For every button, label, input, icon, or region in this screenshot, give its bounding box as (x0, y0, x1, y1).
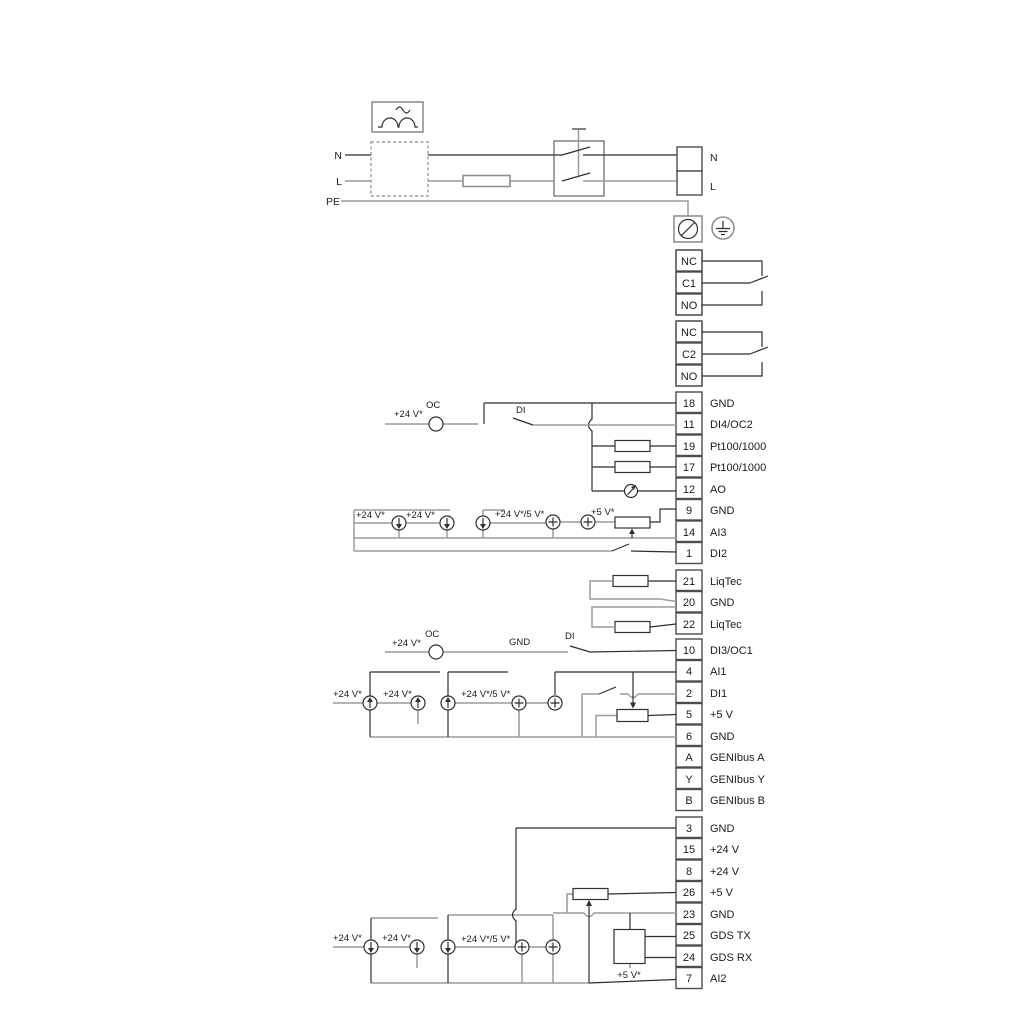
potentiometer-icon (615, 517, 650, 528)
rectified-wave-icon (378, 118, 418, 127)
open-collector-icon (429, 645, 443, 659)
terminal-number: 8 (686, 866, 692, 878)
di-switch-icon (570, 646, 676, 652)
terminal-number: 3 (686, 823, 692, 835)
terminal-number: 17 (683, 462, 695, 474)
filter-box (371, 142, 428, 196)
terminal-label: AI3 (710, 527, 727, 539)
pe-label: PE (326, 196, 340, 208)
v24-label: +24 V* (382, 933, 411, 944)
wiper-arrow-icon (629, 529, 635, 535)
terminal-group-2: 10 4 2 5 6 A Y B DI3/OC1 AI1 DI1 +5 V GN… (676, 639, 765, 811)
pt100-sensor-icon (615, 441, 650, 452)
terminal-number: 7 (686, 973, 692, 985)
power-terminal-block: N L (677, 147, 718, 195)
relay-contact-1: NC C1 NO (676, 250, 768, 315)
terminal-number: 1 (686, 548, 692, 560)
terminal-label: GND (710, 731, 735, 743)
oc-label: OC (425, 629, 439, 640)
liqtec-sensor-icon (615, 622, 650, 633)
v24-label: +24 V* (392, 638, 421, 649)
n-right-label: N (710, 152, 718, 164)
terminal-number: 23 (683, 909, 695, 921)
oc-label: OC (426, 400, 440, 411)
terminal-label: DI4/OC2 (710, 419, 753, 431)
ai1-circuit: +24 V* +24 V* +24 V*/5 V* (333, 672, 676, 737)
terminal-number: NO (681, 371, 698, 383)
terminal-label: GDS TX (710, 930, 751, 942)
terminal-number: 2 (686, 688, 692, 700)
changeover-contact-icon (702, 261, 768, 305)
terminal-label: Pt100/1000 (710, 462, 766, 474)
open-collector-icon (429, 417, 443, 431)
terminal-label: AO (710, 484, 726, 496)
potentiometer-icon (617, 710, 648, 722)
terminal-group-liqtec: 21 20 22 LiqTec GND LiqTec (676, 570, 742, 634)
terminal-label: GENIbus Y (710, 774, 765, 786)
terminal-number: NC (681, 256, 697, 268)
di-switch-icon (612, 544, 676, 552)
liqtec-sensor-icon (613, 576, 648, 587)
terminal-label: GDS RX (710, 952, 753, 964)
ai2-gds-circuit: +24 V* +24 V* +24 V*/5 V* +5 V* (333, 828, 676, 983)
v24-label: +24 V* (333, 933, 362, 944)
terminal-number: 24 (683, 952, 695, 964)
terminal-number: 19 (683, 441, 695, 453)
terminal-number: 18 (683, 398, 695, 410)
wiring-diagram: N L PE N L NC C1 NO NC (0, 0, 1024, 1024)
terminal-number: 26 (683, 887, 695, 899)
terminal-number: 25 (683, 930, 695, 942)
terminal-number: 5 (686, 709, 692, 721)
di-switch-icon (513, 418, 533, 425)
gnd-label: GND (509, 637, 530, 648)
terminal-number: 20 (683, 597, 695, 609)
earth-icon (712, 217, 734, 239)
terminal-label: LiqTec (710, 576, 742, 588)
di4-oc2-circuit: +24 V* OC DI (385, 400, 676, 498)
v24-5v-label: +24 V*/5 V* (461, 934, 511, 945)
di3-oc1-circuit: +24 V* OC GND DI (385, 629, 676, 659)
v24-label: +24 V* (383, 689, 412, 700)
terminal-number: 21 (683, 576, 695, 588)
wiper-arrow-icon (586, 900, 592, 906)
terminal-label: Pt100/1000 (710, 441, 766, 453)
changeover-contact-icon (702, 332, 768, 376)
terminal-group-1: 18 11 19 17 12 9 14 1 GND DI4/OC2 Pt100/… (676, 392, 766, 564)
terminal-label: GENIbus A (710, 752, 765, 764)
terminal-number: NC (681, 327, 697, 339)
l-left-label: L (336, 176, 342, 188)
n-left-label: N (334, 150, 342, 162)
terminal-number: 9 (686, 505, 692, 517)
wire (590, 581, 676, 627)
ai3-circuit: +24 V* +24 V* +24 V*/5 V* +5 V* (354, 507, 676, 552)
terminal-number: 11 (683, 419, 694, 431)
gds-sensor-box (614, 930, 645, 964)
terminal-label: DI1 (710, 688, 727, 700)
terminal-number: C2 (682, 349, 696, 361)
l-pe-wires (341, 181, 688, 216)
v5-label: +5 V* (617, 970, 641, 981)
terminal-label: AI2 (710, 973, 727, 985)
terminal-label: +24 V (710, 866, 740, 878)
v24-label: +24 V* (356, 510, 385, 521)
potentiometer-icon (573, 889, 608, 900)
terminal-number: 4 (686, 666, 692, 678)
terminal-label: GND (710, 597, 735, 609)
terminal-number: 15 (683, 844, 695, 856)
terminal-label: GND (710, 909, 735, 921)
v24-label: +24 V* (333, 689, 362, 700)
terminal-label: GND (710, 823, 735, 835)
terminal-label: GND (710, 505, 735, 517)
v24-5v-label: +24 V*/5 V* (461, 689, 511, 700)
wiper-arrow-icon (630, 703, 636, 709)
terminal-number: 22 (683, 619, 695, 631)
terminal-number: 12 (683, 484, 695, 496)
terminal-number: C1 (682, 278, 696, 290)
terminal-number: Y (685, 774, 693, 786)
terminal-label: DI3/OC1 (710, 645, 753, 657)
v24-label: +24 V* (406, 510, 435, 521)
terminal-label: GND (710, 398, 735, 410)
wire (648, 715, 676, 716)
wire (648, 581, 676, 627)
terminal-number: 6 (686, 731, 692, 743)
terminal-number: 10 (683, 645, 695, 657)
page: N L PE N L NC C1 NO NC (0, 0, 1024, 1024)
liqtec-circuit (590, 576, 676, 633)
terminal-label: +5 V (710, 709, 734, 721)
terminal-label: LiqTec (710, 619, 742, 631)
v24-label: +24 V* (394, 409, 423, 420)
sine-wave-icon (396, 107, 410, 113)
pe-terminal-icon (674, 216, 702, 242)
terminal-label: +5 V (710, 887, 734, 899)
terminal-number: 14 (683, 527, 695, 539)
terminal-number: A (685, 752, 693, 764)
l-right-label: L (710, 181, 716, 193)
v24-5v-label: +24 V*/5 V* (495, 509, 545, 520)
terminal-label: GENIbus B (710, 795, 765, 807)
terminal-number: B (685, 795, 692, 807)
terminal-label: DI2 (710, 548, 727, 560)
relay-contact-2: NC C2 NO (676, 321, 768, 386)
di-label: DI (565, 631, 575, 642)
terminal-label: +24 V (710, 844, 740, 856)
fuse-icon (463, 176, 510, 187)
analog-output-meter-icon (625, 485, 638, 498)
terminal-label: AI1 (710, 666, 727, 678)
di-label: DI (516, 405, 526, 416)
power-section: N L PE N L (326, 102, 734, 242)
terminal-number: NO (681, 300, 698, 312)
switch-blades (562, 147, 590, 181)
v5-label: +5 V* (591, 507, 615, 518)
terminal-group-3: 3 15 8 26 23 25 24 7 GND +24 V +24 V +5 … (676, 817, 753, 989)
pt100-sensor-icon (615, 462, 650, 473)
